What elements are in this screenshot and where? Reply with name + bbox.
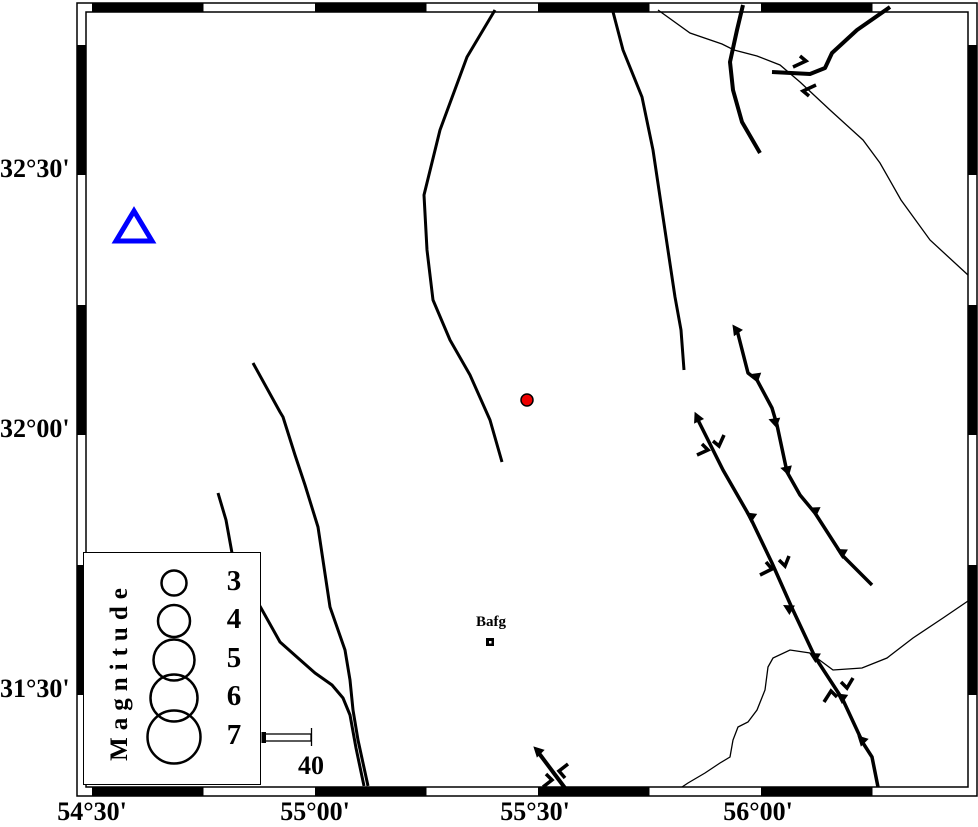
station-triangle-marker xyxy=(116,211,152,241)
legend-magnitude-value-4: 4 xyxy=(209,603,259,636)
x-axis-label-2: 55°30' xyxy=(480,797,590,827)
town-label: Bafg xyxy=(446,614,536,631)
legend-magnitude-value-7: 7 xyxy=(209,719,259,752)
magnitude-legend: Magnitude 34567 xyxy=(83,552,261,785)
frame-tick-segment xyxy=(538,3,650,12)
fault-line xyxy=(424,10,502,462)
x-axis-label-3: 56°00' xyxy=(703,797,813,827)
legend-magnitude-value-5: 5 xyxy=(209,642,259,675)
y-axis-label-0: 32°30' xyxy=(0,154,66,184)
frame-tick-segment xyxy=(761,3,873,12)
town-square-center xyxy=(489,641,492,644)
river-line xyxy=(658,10,968,275)
legend-circle-mag-3 xyxy=(162,571,187,596)
frame-tick-segment xyxy=(77,305,86,435)
frame-tick-segment xyxy=(761,787,873,796)
strike-slip-mark xyxy=(793,56,806,67)
x-axis-label-1: 55°00' xyxy=(260,797,370,827)
fault-line xyxy=(737,330,872,585)
scale-bar-left-cap xyxy=(262,732,267,743)
frame-tick-segment xyxy=(968,45,977,175)
frame-tick-segment xyxy=(315,787,427,796)
strike-slip-mark xyxy=(760,562,772,575)
strike-slip-mark xyxy=(841,678,853,688)
legend-circle-mag-4 xyxy=(158,605,190,637)
fault-line xyxy=(772,7,890,74)
fault-line xyxy=(612,8,684,370)
strike-slip-mark xyxy=(697,444,708,455)
legend-circle-mag-7 xyxy=(148,711,201,764)
y-axis-label-2: 31°30' xyxy=(0,674,66,704)
frame-tick-segment xyxy=(92,787,204,796)
legend-magnitude-value-6: 6 xyxy=(209,680,259,713)
thrust-tooth xyxy=(728,321,743,336)
frame-tick-segment xyxy=(538,787,650,796)
epicenter-marker xyxy=(521,394,533,406)
y-axis-label-1: 32°00' xyxy=(0,414,66,444)
seismicity-map: Magnitude 34567 40 Bafg 54°30'55°00'55°3… xyxy=(0,0,978,827)
legend-magnitude-value-3: 3 xyxy=(209,565,259,598)
x-axis-label-0: 54°30' xyxy=(37,797,147,827)
thrust-tooth xyxy=(853,731,868,746)
river-line xyxy=(682,601,968,787)
scale-bar xyxy=(264,734,311,741)
frame-tick-segment xyxy=(968,305,977,435)
scale-bar-label: 40 xyxy=(289,751,333,781)
thrust-tooth xyxy=(690,409,704,423)
frame-tick-segment xyxy=(92,3,204,12)
strike-slip-mark xyxy=(824,691,837,702)
fault-line xyxy=(730,5,760,153)
strike-slip-mark xyxy=(559,764,568,778)
frame-tick-segment xyxy=(968,565,977,695)
strike-slip-mark xyxy=(713,435,724,446)
strike-slip-mark xyxy=(543,774,552,787)
frame-tick-segment xyxy=(315,3,427,12)
frame-tick-segment xyxy=(77,45,86,175)
strike-slip-mark xyxy=(779,556,789,566)
